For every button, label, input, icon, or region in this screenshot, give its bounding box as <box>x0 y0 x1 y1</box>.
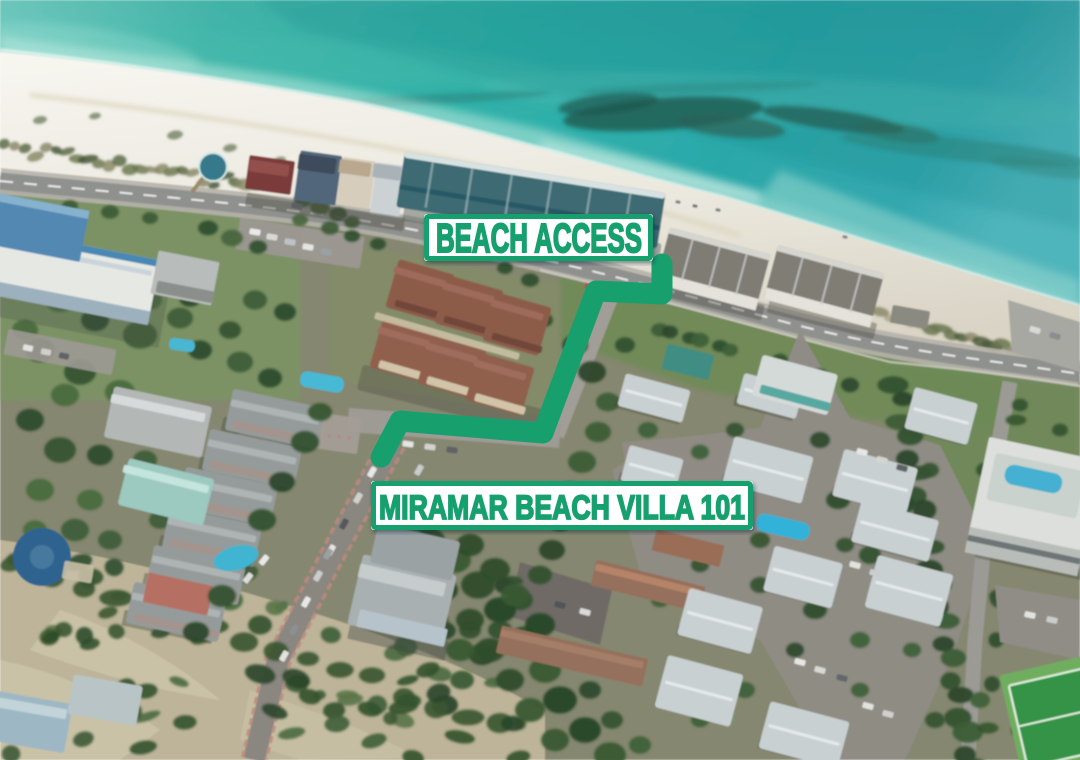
svg-text:BEACH ACCESS: BEACH ACCESS <box>436 215 642 261</box>
svg-text:MIRAMAR BEACH VILLA 101: MIRAMAR BEACH VILLA 101 <box>379 489 745 527</box>
